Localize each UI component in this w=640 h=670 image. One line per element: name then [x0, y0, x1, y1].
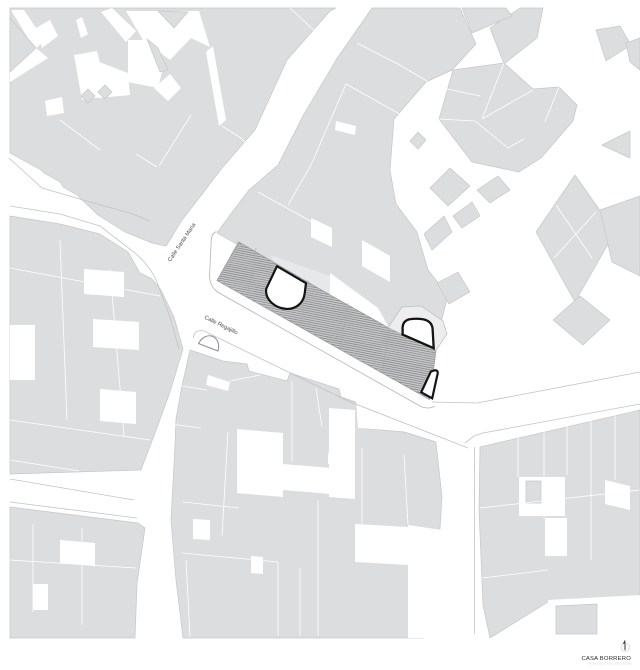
svg-text:PLANO DE SITUACION E 1/1000: PLANO DE SITUACION E 1/1000: [589, 662, 632, 666]
